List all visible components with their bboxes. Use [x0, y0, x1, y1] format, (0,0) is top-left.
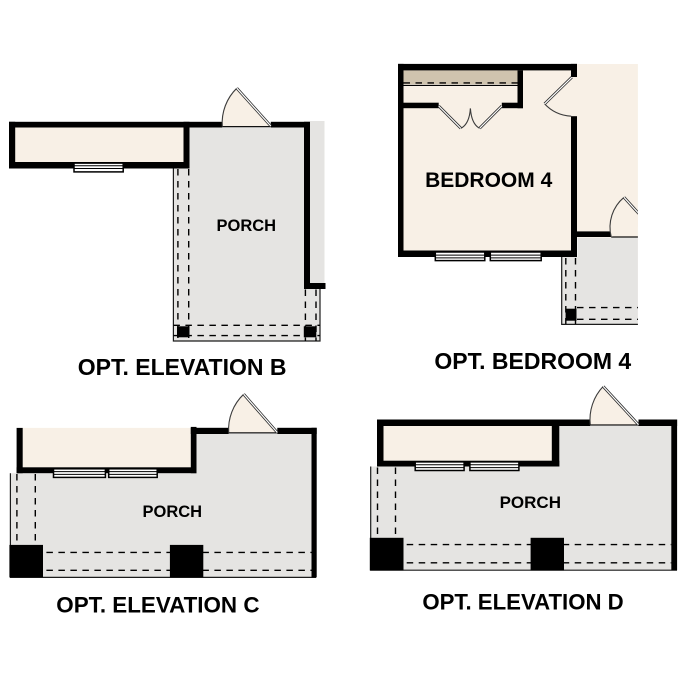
svg-text:OPT. ELEVATION D: OPT. ELEVATION D [422, 589, 623, 614]
svg-text:PORCH: PORCH [217, 217, 277, 235]
svg-text:OPT. BEDROOM 4: OPT. BEDROOM 4 [434, 348, 631, 374]
svg-text:PORCH: PORCH [143, 503, 203, 521]
svg-text:BEDROOM 4: BEDROOM 4 [425, 169, 553, 192]
svg-text:OPT. ELEVATION C: OPT. ELEVATION C [56, 592, 259, 617]
svg-text:OPT. ELEVATION B: OPT. ELEVATION B [78, 354, 287, 380]
svg-text:PORCH: PORCH [500, 493, 561, 512]
